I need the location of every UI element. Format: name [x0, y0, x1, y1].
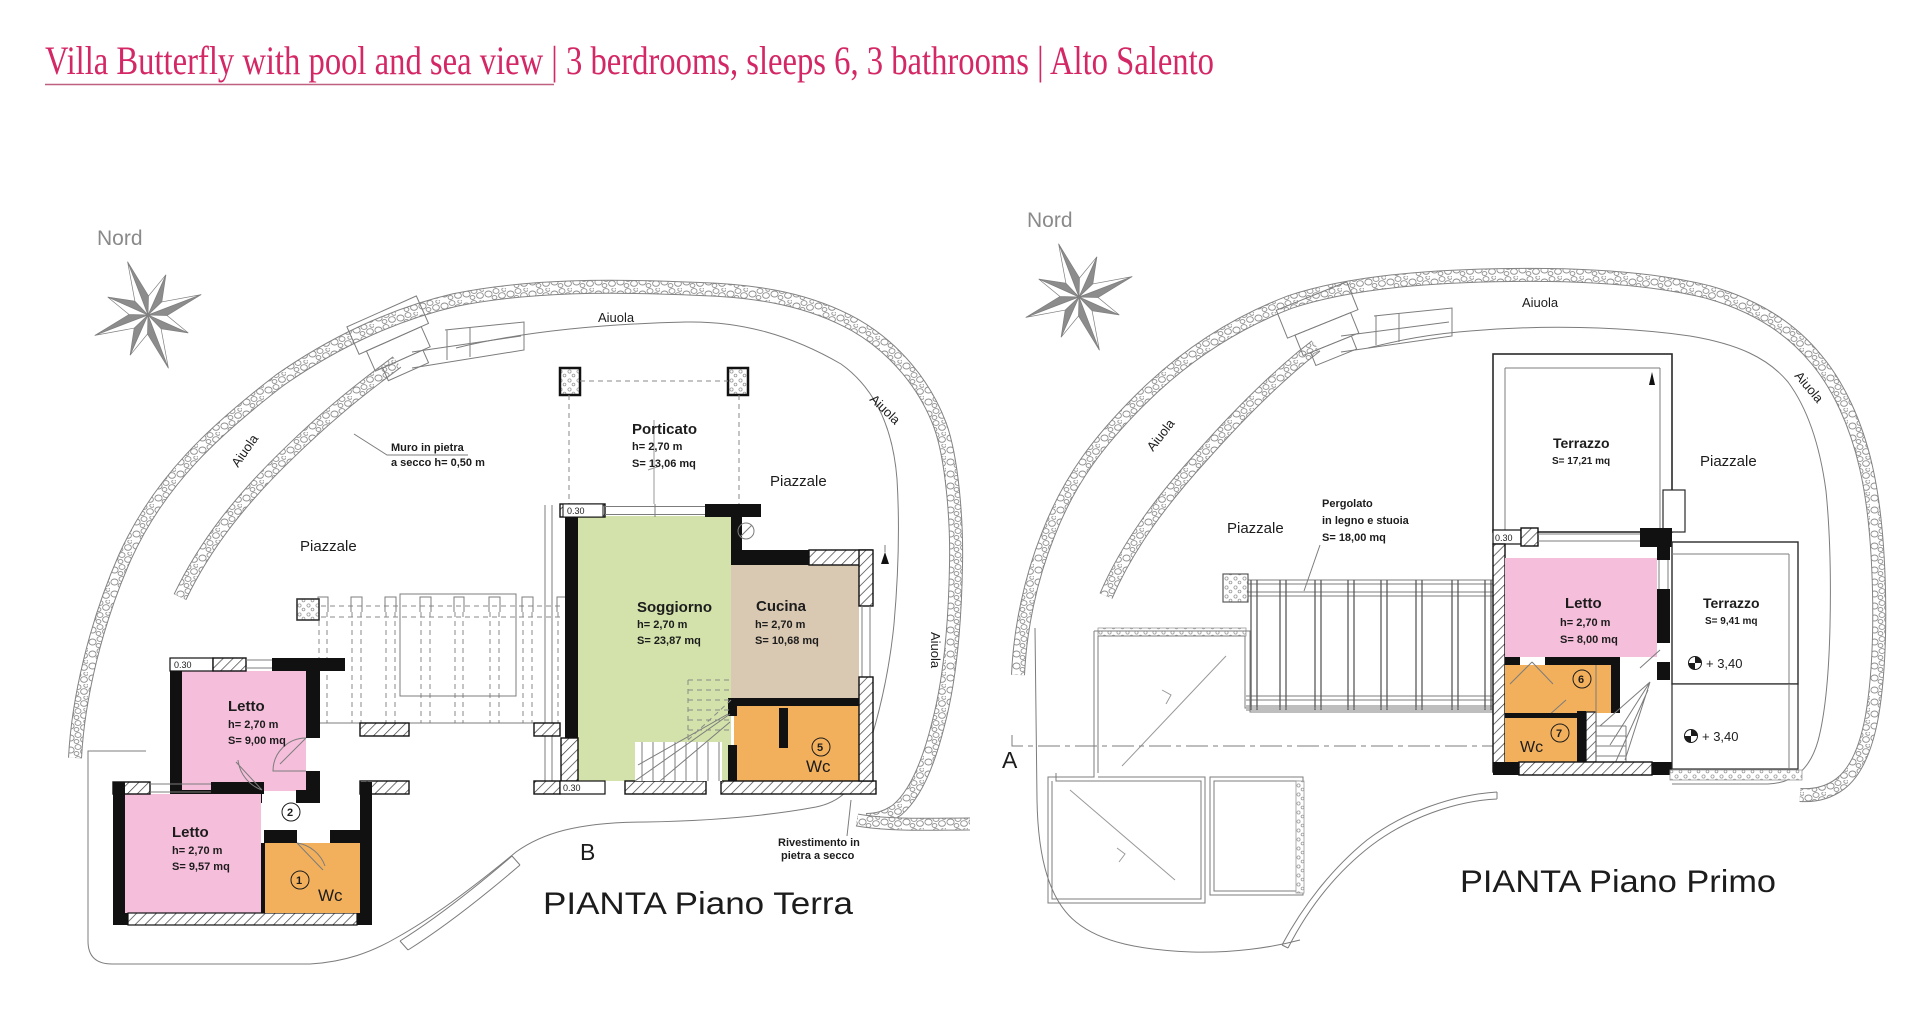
svg-text:2: 2	[287, 807, 293, 819]
svg-text:Letto: Letto	[1565, 595, 1602, 612]
svg-text:Terrazzo: Terrazzo	[1553, 435, 1610, 451]
svg-text:Wc: Wc	[318, 886, 343, 905]
svg-text:S= 17,21 mq: S= 17,21 mq	[1552, 456, 1610, 467]
svg-text:S= 9,57 mq: S= 9,57 mq	[172, 861, 230, 873]
svg-text:Nord: Nord	[1027, 209, 1073, 232]
svg-text:Terrazzo: Terrazzo	[1703, 595, 1760, 611]
svg-text:Piazzale: Piazzale	[1227, 520, 1284, 537]
svg-text:+ 3,40: + 3,40	[1702, 729, 1739, 744]
svg-text:PIANTA Piano Terra: PIANTA Piano Terra	[543, 885, 854, 921]
svg-text:Piazzale: Piazzale	[1700, 453, 1757, 470]
svg-text:A: A	[1002, 747, 1018, 773]
svg-text:0.30: 0.30	[563, 783, 581, 793]
svg-text:Wc: Wc	[1520, 739, 1543, 756]
svg-text:pietra a secco: pietra a secco	[781, 850, 855, 862]
svg-text:7: 7	[1556, 728, 1562, 740]
svg-text:B: B	[580, 839, 595, 865]
svg-text:Aiuola: Aiuola	[928, 632, 943, 669]
svg-text:h= 2,70 m: h= 2,70 m	[637, 619, 688, 631]
svg-text:1: 1	[296, 875, 302, 887]
svg-text:Nord: Nord	[97, 227, 143, 250]
svg-text:Porticato: Porticato	[632, 421, 697, 438]
svg-text:h= 2,70 m: h= 2,70 m	[228, 719, 279, 731]
svg-text:Muro in pietra: Muro in pietra	[391, 442, 465, 454]
svg-text:Letto: Letto	[172, 824, 209, 841]
svg-text:S= 23,87 mq: S= 23,87 mq	[637, 635, 701, 647]
svg-text:Wc: Wc	[806, 757, 831, 776]
svg-text:5: 5	[817, 742, 823, 754]
svg-text:0.30: 0.30	[1495, 533, 1513, 543]
svg-text:0.30: 0.30	[567, 506, 585, 516]
svg-text:h= 2,70 m: h= 2,70 m	[755, 619, 806, 631]
svg-text:S= 18,00 mq: S= 18,00 mq	[1322, 532, 1386, 544]
svg-text:h= 2,70 m: h= 2,70 m	[1560, 617, 1611, 629]
svg-text:Villa Butterfly with pool and: Villa Butterfly with pool and sea view |…	[45, 38, 1214, 83]
svg-text:Soggiorno: Soggiorno	[637, 599, 712, 616]
svg-text:S= 13,06 mq: S= 13,06 mq	[632, 458, 696, 470]
svg-text:Cucina: Cucina	[756, 598, 807, 615]
svg-text:h= 2,70 m: h= 2,70 m	[632, 441, 683, 453]
svg-text:PIANTA Piano Primo: PIANTA Piano Primo	[1460, 863, 1776, 899]
svg-text:a secco h= 0,50 m: a secco h= 0,50 m	[391, 457, 485, 469]
svg-text:Pergolato: Pergolato	[1322, 498, 1373, 510]
svg-text:S= 9,41 mq: S= 9,41 mq	[1705, 616, 1758, 627]
svg-text:Aiuola: Aiuola	[598, 310, 635, 325]
svg-text:Piazzale: Piazzale	[300, 538, 357, 555]
svg-text:0.30: 0.30	[174, 660, 192, 670]
svg-text:h= 2,70 m: h= 2,70 m	[172, 845, 223, 857]
svg-text:S= 10,68 mq: S= 10,68 mq	[755, 635, 819, 647]
svg-text:S= 8,00 mq: S= 8,00 mq	[1560, 634, 1618, 646]
svg-text:S= 9,00 mq: S= 9,00 mq	[228, 735, 286, 747]
svg-text:Rivestimento in: Rivestimento in	[778, 837, 860, 849]
svg-text:Aiuola: Aiuola	[1522, 295, 1559, 310]
svg-text:+ 3,40: + 3,40	[1706, 656, 1743, 671]
svg-text:Piazzale: Piazzale	[770, 473, 827, 490]
svg-text:6: 6	[1578, 674, 1584, 686]
svg-text:Letto: Letto	[228, 698, 265, 715]
svg-text:in legno e stuoia: in legno e stuoia	[1322, 515, 1410, 527]
